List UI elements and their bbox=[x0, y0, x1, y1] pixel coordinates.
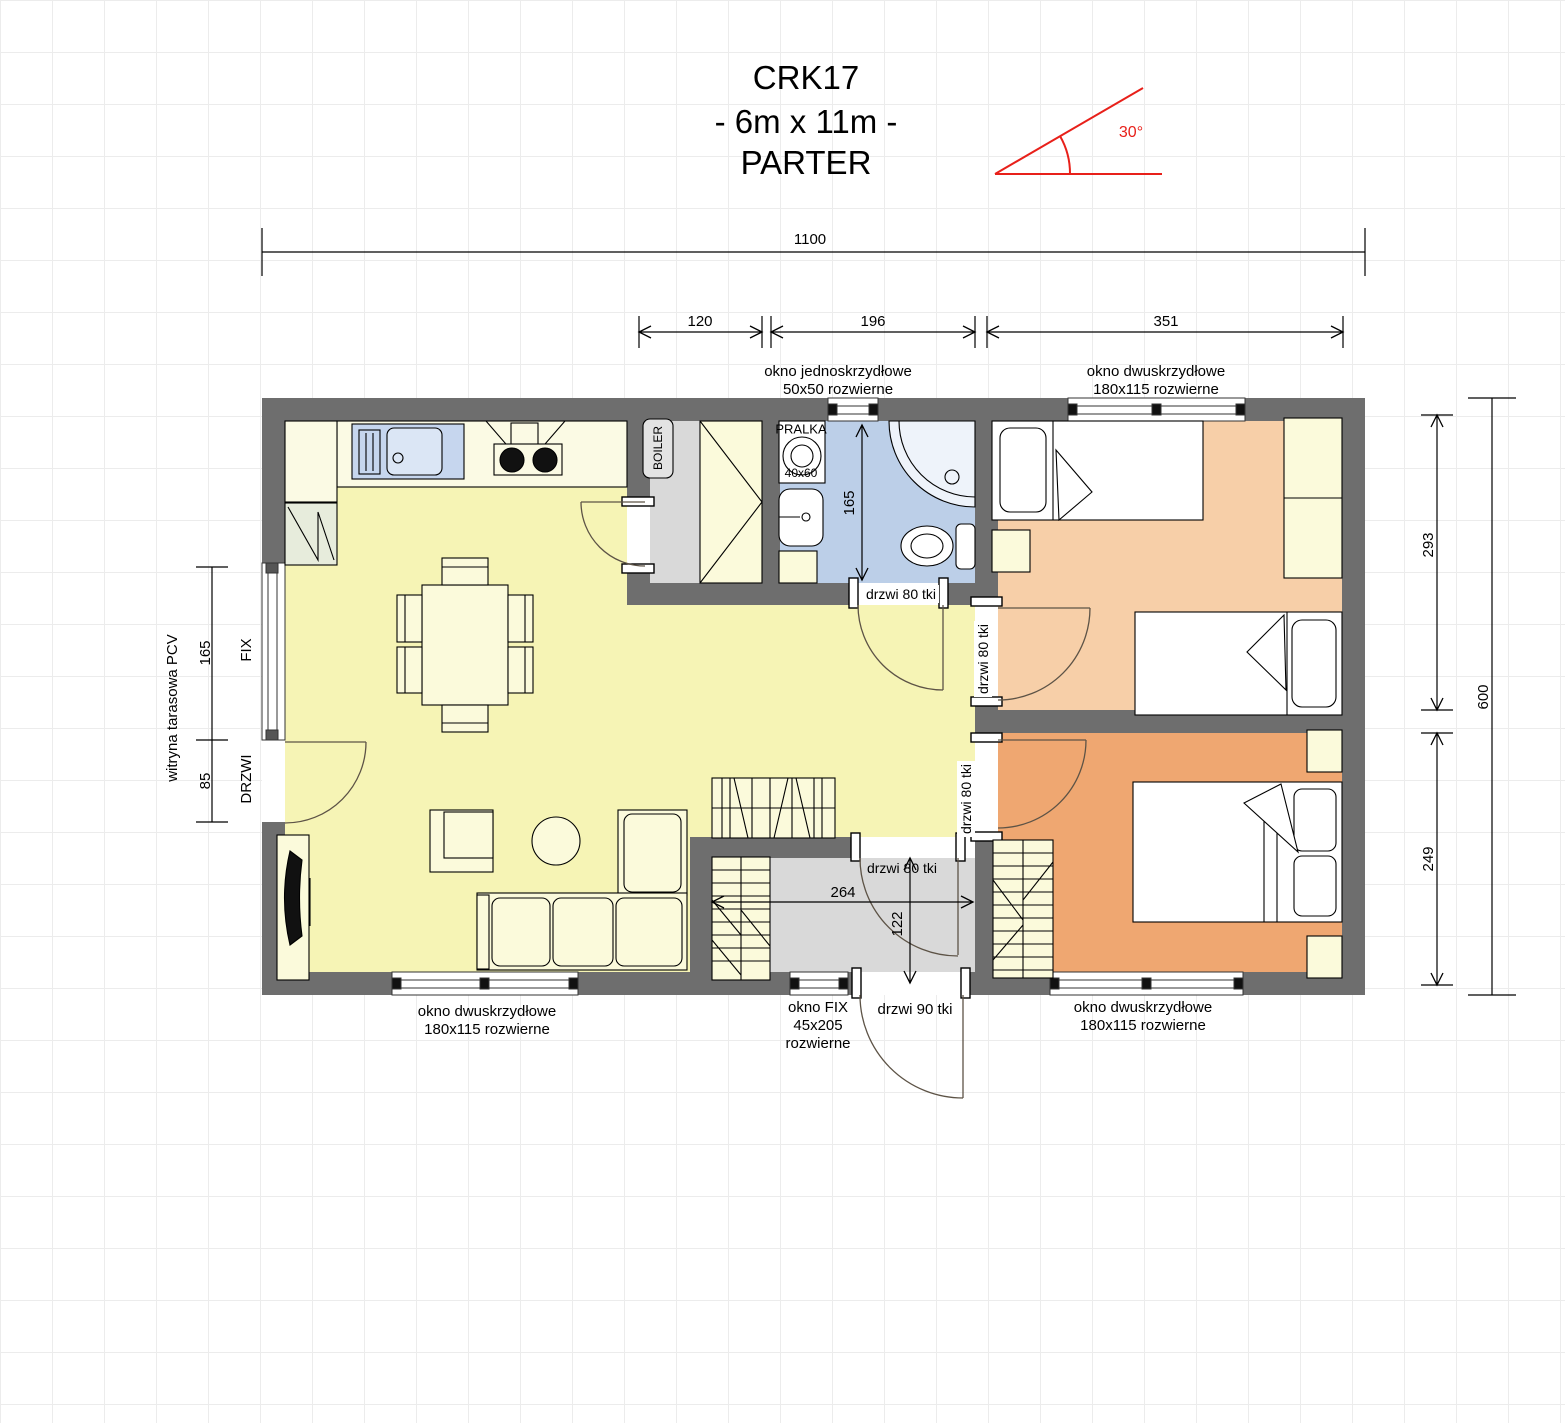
entry-wardrobe bbox=[712, 857, 770, 980]
label-terrace-door-type: DRZWI bbox=[238, 754, 256, 803]
label-window-entry-fix-line2: 45x205 bbox=[785, 1017, 850, 1035]
dim-label-terrace-window: 165 bbox=[197, 640, 215, 665]
bedroom2-wardrobe bbox=[993, 840, 1053, 978]
window-entry-fix bbox=[790, 972, 848, 995]
label-window-top-single: okno jednoskrzydłowe 50x50 rozwierne bbox=[764, 363, 912, 399]
tv-stand bbox=[277, 835, 310, 980]
window-bedroom1 bbox=[1068, 398, 1245, 421]
label-window-bedroom2: okno dwuskrzydłowe 180x115 rozwierne bbox=[1074, 999, 1212, 1035]
label-window-entry-fix-line1: okno FIX bbox=[785, 999, 850, 1017]
fridge bbox=[285, 503, 337, 565]
label-window-living-line2: 180x115 rozwierne bbox=[418, 1021, 556, 1039]
bedroom1-wardrobe bbox=[1284, 418, 1342, 578]
label-window-entry-fix: okno FIX 45x205 rozwierne bbox=[785, 999, 850, 1053]
label-terrace-window-type: FIX bbox=[238, 638, 256, 661]
label-window-living-line1: okno dwuskrzydłowe bbox=[418, 1003, 556, 1021]
utility-wardrobe bbox=[700, 421, 762, 583]
dim-label-bathroom-depth: 165 bbox=[841, 490, 859, 515]
washbasin bbox=[779, 489, 823, 546]
title-floor: PARTER bbox=[741, 143, 872, 183]
label-window-top-single-line2: 50x50 rozwierne bbox=[764, 381, 912, 399]
wall-utility-bath bbox=[762, 421, 780, 605]
label-door-bedroom1: drzwi 80 tki bbox=[974, 621, 992, 697]
label-boiler: BOILER bbox=[651, 426, 665, 470]
window-top-single bbox=[828, 398, 878, 421]
roof-angle-label: 30° bbox=[1119, 124, 1143, 142]
label-window-entry-fix-line3: rozwierne bbox=[785, 1035, 850, 1053]
window-terrace-fix bbox=[262, 563, 285, 740]
stove bbox=[494, 444, 562, 475]
window-living bbox=[392, 972, 578, 995]
label-window-bedroom1-line2: 180x115 rozwierne bbox=[1087, 381, 1225, 399]
coffee-table bbox=[532, 817, 580, 865]
label-washer: PRALKA bbox=[775, 422, 826, 437]
label-window-top-single-line1: okno jednoskrzydłowe bbox=[764, 363, 912, 381]
label-door-bedroom2: drzwi 80 tki bbox=[957, 761, 975, 837]
dim-label-total-width: 1100 bbox=[794, 231, 826, 249]
bath-cabinet bbox=[779, 551, 817, 583]
label-door-bathroom: drzwi 80 tki bbox=[863, 585, 939, 603]
dim-label-bathroom-width: 196 bbox=[860, 313, 885, 331]
living-cabinet bbox=[712, 778, 835, 838]
label-window-living: okno dwuskrzydłowe 180x115 rozwierne bbox=[418, 1003, 556, 1039]
armchair bbox=[430, 810, 493, 872]
bed2-double bbox=[1133, 782, 1342, 922]
kitchen-tall-cabinet bbox=[285, 421, 337, 502]
tv bbox=[285, 851, 303, 945]
floor-plan-canvas: CRK17 - 6m x 11m - PARTER 30° 1100 120 1… bbox=[0, 0, 1565, 1423]
title-size: - 6m x 11m - bbox=[715, 102, 898, 142]
wall-right bbox=[1342, 398, 1365, 995]
bedroom2-nightstand-bottom bbox=[1307, 936, 1342, 978]
wall-entry-top bbox=[690, 837, 855, 858]
dim-label-utility-width: 120 bbox=[687, 313, 712, 331]
dim-right-side bbox=[1421, 398, 1516, 995]
bedroom1-nightstand bbox=[992, 530, 1030, 572]
title-code: CRK17 bbox=[753, 58, 859, 98]
window-bedroom2 bbox=[1050, 972, 1243, 995]
label-window-bedroom1-line1: okno dwuskrzydłowe bbox=[1087, 363, 1225, 381]
label-window-bedroom2-line2: 180x115 rozwierne bbox=[1074, 1017, 1212, 1035]
bed1-single-a bbox=[992, 421, 1203, 520]
dim-label-bedroom1-depth: 293 bbox=[1420, 532, 1438, 557]
label-window-bedroom1: okno dwuskrzydłowe 180x115 rozwierne bbox=[1087, 363, 1225, 399]
dim-label-bedroom2-depth: 249 bbox=[1420, 846, 1438, 871]
dim-label-hall-depth: 122 bbox=[889, 911, 907, 936]
dim-label-hall-width: 264 bbox=[830, 884, 855, 902]
dim-top-segments bbox=[639, 316, 1343, 348]
label-door-entry: drzwi 90 tki bbox=[877, 1001, 952, 1019]
entry-hall bbox=[712, 857, 770, 980]
dim-label-terrace-door: 85 bbox=[197, 773, 215, 790]
dim-label-bedroom-width: 351 bbox=[1153, 313, 1178, 331]
label-terrace-system: witryna tarasowa PCV bbox=[164, 634, 182, 782]
kitchen-sink bbox=[352, 424, 464, 479]
bedroom2-nightstand-top bbox=[1307, 730, 1342, 772]
dim-label-total-depth: 600 bbox=[1475, 684, 1493, 709]
floor-plan-drawing bbox=[0, 0, 1565, 1423]
label-door-hall: drzwi 80 tki bbox=[867, 859, 937, 877]
dining-table bbox=[422, 585, 508, 705]
label-window-bedroom2-line1: okno dwuskrzydłowe bbox=[1074, 999, 1212, 1017]
bed1-single-b bbox=[1135, 612, 1342, 715]
label-washer-size: 40x60 bbox=[785, 466, 818, 480]
toilet bbox=[901, 524, 975, 569]
